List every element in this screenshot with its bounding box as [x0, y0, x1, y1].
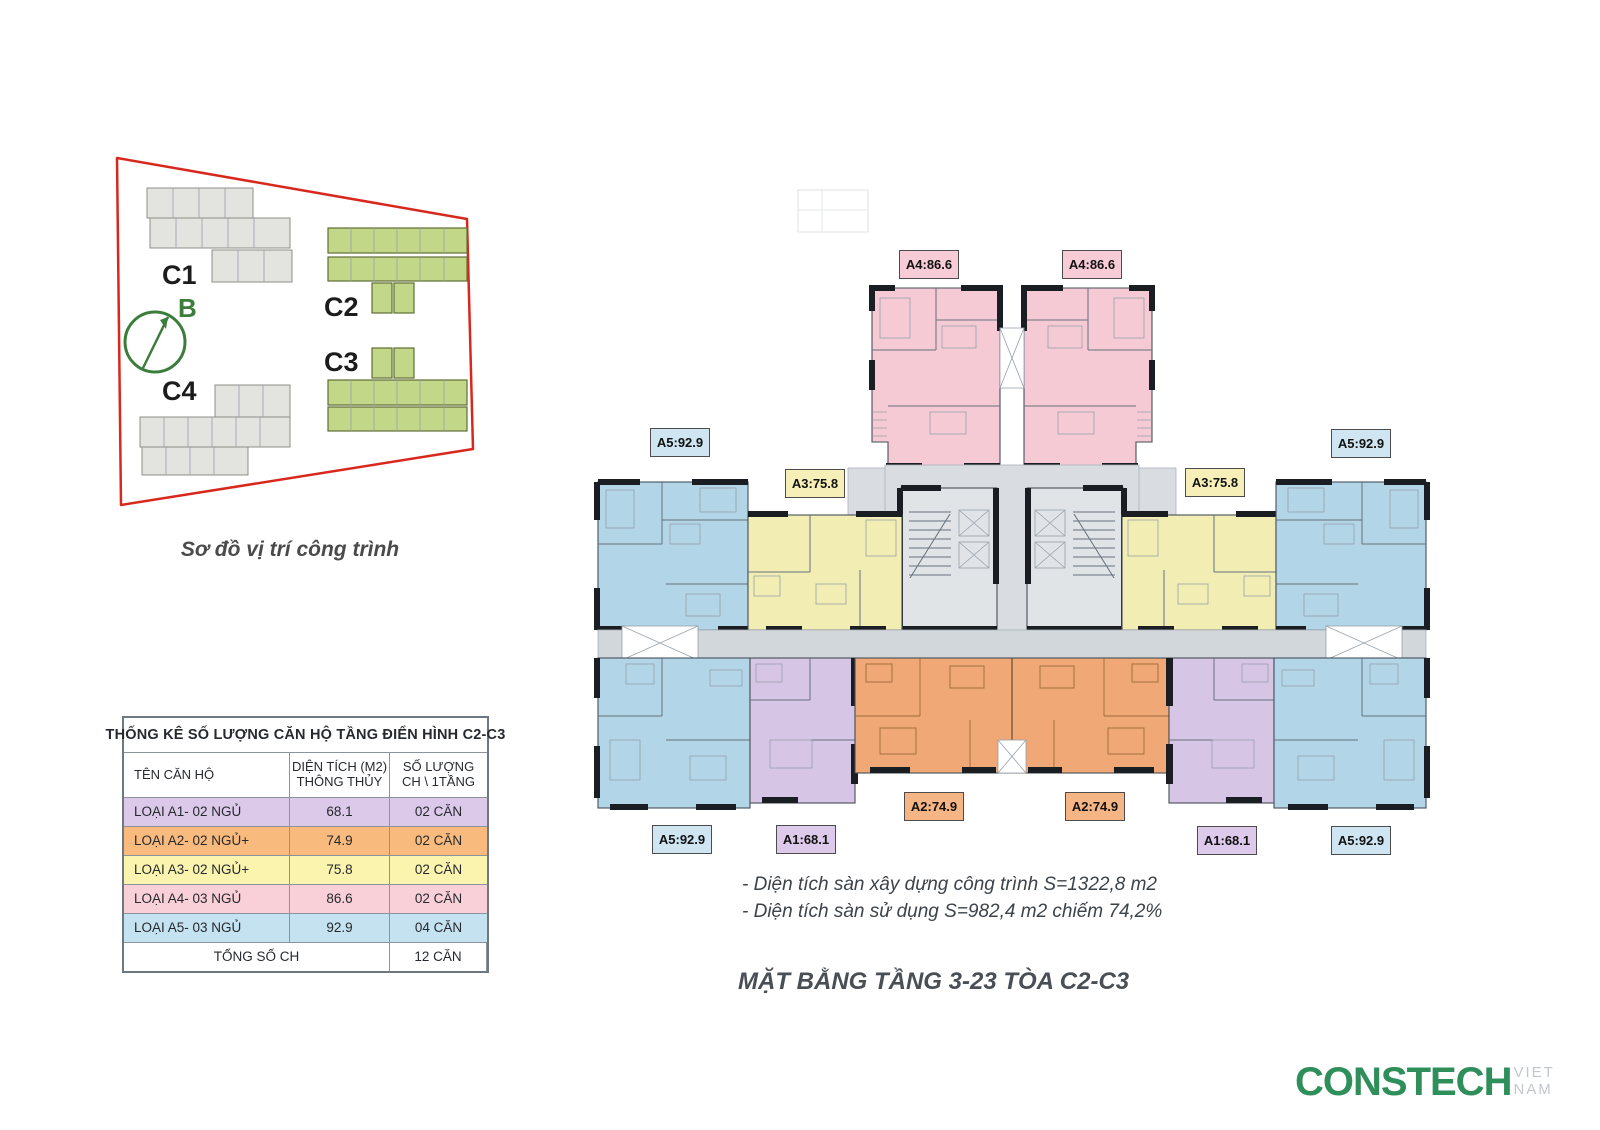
unit-label-a3-right: A3:75.8: [1185, 468, 1245, 497]
logo-brand: CONSTECH: [1295, 1062, 1511, 1102]
row-a5-count: 04 CĂN: [390, 914, 487, 943]
unit-a4-left: [869, 285, 1003, 469]
col3-line1: SỐ LƯỢNG: [403, 760, 474, 775]
core-block: [885, 465, 1139, 632]
unit-label-a1-bottom-left: A1:68.1: [776, 825, 836, 854]
row-a2-area: 74.9: [290, 827, 390, 856]
unit-a3-left: [748, 511, 902, 632]
unit-a5-mid-left: [594, 479, 748, 632]
unit-label-a4-right: A4:86.6: [1062, 250, 1122, 279]
col2-line2: THÔNG THỦY: [297, 775, 383, 790]
corridor: [598, 626, 1426, 660]
unit-label-a2-right: A2:74.9: [1065, 792, 1125, 821]
row-a1-count: 02 CĂN: [390, 798, 487, 827]
row-a4-name: LOẠI A4- 03 NGỦ: [124, 885, 290, 914]
unit-a2-pair: [855, 658, 1169, 773]
col-header-count: SỐ LƯỢNG CH \ 1TẦNG: [390, 753, 487, 798]
table-title: THỐNG KÊ SỐ LƯỢNG CĂN HỘ TẦNG ĐIỂN HÌNH …: [124, 718, 487, 753]
unit-label-a5-top-right: A5:92.9: [1331, 429, 1391, 458]
row-a3-area: 75.8: [290, 856, 390, 885]
row-a5-name: LOẠI A5- 03 NGỦ: [124, 914, 290, 943]
row-a2-name: LOẠI A2- 02 NGỦ+: [124, 827, 290, 856]
row-a1-area: 68.1: [290, 798, 390, 827]
unit-a5-bot-left: [594, 658, 750, 810]
col-header-name: TÊN CĂN HỘ: [124, 753, 290, 798]
unit-label-a5-top-left: A5:92.9: [650, 428, 710, 457]
row-a1-name: LOẠI A1- 02 NGỦ: [124, 798, 290, 827]
site-plan-caption: Sơ đồ vị trí công trình: [150, 538, 430, 562]
row-a4-area: 86.6: [290, 885, 390, 914]
row-a2-count: 02 CĂN: [390, 827, 487, 856]
unit-label-a4-left: A4:86.6: [899, 250, 959, 279]
area-note-2: - Diện tích sàn sử dụng S=982,4 m2 chiếm…: [742, 901, 1162, 923]
building-c4-label: C4: [162, 376, 197, 406]
unit-a5-mid-right: [1276, 479, 1430, 632]
apartment-stats-table: THỐNG KÊ SỐ LƯỢNG CĂN HỘ TẦNG ĐIỂN HÌNH …: [122, 716, 489, 973]
unit-label-a5-bottom-right: A5:92.9: [1331, 826, 1391, 855]
unit-a5-bot-right: [1274, 658, 1430, 810]
unit-a1-left: [750, 658, 858, 803]
row-a4-count: 02 CĂN: [390, 885, 487, 914]
compass-icon: [125, 312, 185, 372]
compass-north-label: B: [178, 293, 197, 323]
area-note-1: - Diện tích sàn xây dựng công trình S=13…: [742, 874, 1157, 896]
light-well-top: [1000, 328, 1024, 388]
total-label: TỔNG SỐ CH: [124, 943, 390, 971]
unit-a3-right: [1122, 511, 1276, 632]
col1-text: TÊN CĂN HỘ: [134, 768, 214, 783]
building-c2-label: C2: [324, 292, 359, 322]
logo-suffix: VIET NAM: [1513, 1064, 1600, 1098]
constech-logo: CONSTECH VIET NAM: [1295, 1062, 1600, 1102]
unit-label-a1-bottom-right: A1:68.1: [1197, 826, 1257, 855]
row-a3-count: 02 CĂN: [390, 856, 487, 885]
floor-plan-drawing: [570, 180, 1445, 830]
site-plan-diagram: B C1 C2 C3 C4: [100, 140, 500, 580]
unit-label-a2-left: A2:74.9: [904, 792, 964, 821]
page: { "site_plan": { "caption": "Sơ đồ vị tr…: [0, 0, 1600, 1130]
col-header-area: DIỆN TÍCH (M2) THÔNG THỦY: [290, 753, 390, 798]
col2-line1: DIỆN TÍCH (M2): [292, 760, 387, 775]
row-a3-name: LOẠI A3- 02 NGỦ+: [124, 856, 290, 885]
unit-a4-right: [1021, 285, 1155, 469]
building-c3-label: C3: [324, 347, 359, 377]
total-value: 12 CĂN: [390, 943, 487, 971]
building-c1-label: C1: [162, 260, 197, 290]
drawing-artifact: [798, 190, 868, 232]
unit-a1-right: [1166, 658, 1274, 803]
unit-label-a3-left: A3:75.8: [785, 469, 845, 498]
unit-label-a5-bottom-left: A5:92.9: [652, 825, 712, 854]
floor-plan-title: MẶT BẰNG TẦNG 3-23 TÒA C2-C3: [738, 968, 1078, 996]
col3-line2: CH \ 1TẦNG: [402, 775, 475, 790]
row-a5-area: 92.9: [290, 914, 390, 943]
